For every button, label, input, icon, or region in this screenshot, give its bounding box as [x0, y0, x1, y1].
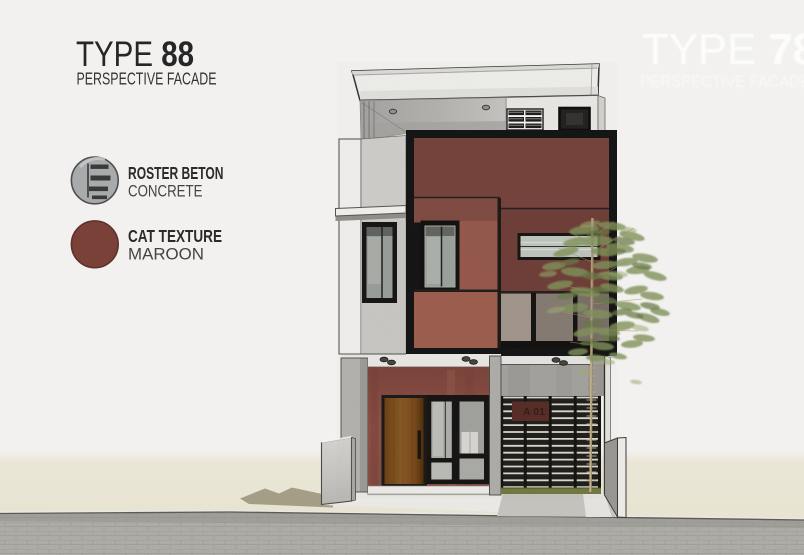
svg-text:CONCRETE: CONCRETE: [128, 182, 203, 201]
svg-text:PERSPECTIVE FACADE: PERSPECTIVE FACADE: [640, 72, 804, 91]
svg-text:MAROON: MAROON: [128, 244, 204, 263]
svg-text:ROSTER BETON: ROSTER BETON: [128, 163, 224, 183]
svg-text:TYPE 78: TYPE 78: [642, 25, 804, 74]
svg-text:PERSPECTIVE FACADE: PERSPECTIVE FACADE: [77, 69, 217, 89]
svg-text:CAT TEXTURE: CAT TEXTURE: [128, 226, 222, 246]
